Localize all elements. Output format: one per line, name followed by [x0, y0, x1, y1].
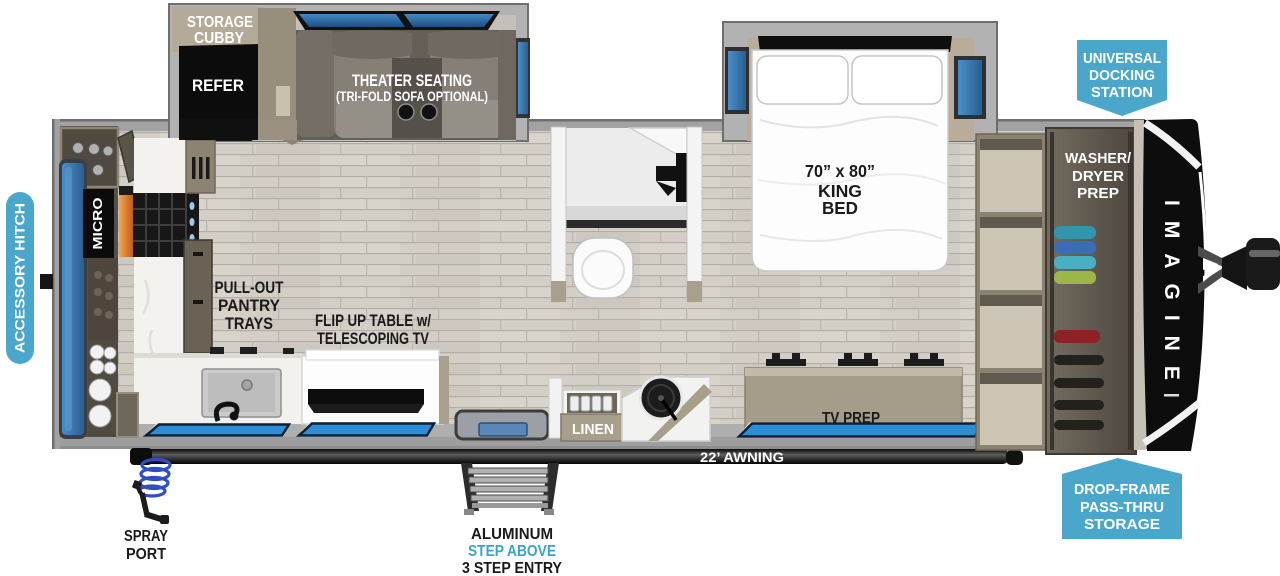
svg-text:ALUMINUM: ALUMINUM	[471, 526, 553, 543]
svg-text:3 STEP ENTRY: 3 STEP ENTRY	[462, 560, 562, 576]
svg-text:DOCKING: DOCKING	[1089, 67, 1155, 84]
svg-text:STORAGE: STORAGE	[1084, 516, 1160, 533]
svg-text:THEATER SEATING: THEATER SEATING	[352, 71, 472, 90]
svg-text:PORT: PORT	[126, 546, 166, 563]
svg-text:DRYER: DRYER	[1072, 169, 1125, 185]
svg-text:STATION: STATION	[1091, 84, 1153, 101]
svg-text:CUBBY: CUBBY	[194, 30, 245, 47]
svg-text:LINEN: LINEN	[572, 422, 614, 438]
svg-text:SPRAY: SPRAY	[124, 528, 169, 545]
svg-text:(TRI-FOLD SOFA OPTIONAL): (TRI-FOLD SOFA OPTIONAL)	[336, 89, 488, 104]
svg-text:PANTRY: PANTRY	[218, 297, 280, 315]
svg-text:TRAYS: TRAYS	[225, 315, 273, 333]
svg-text:WASHER/: WASHER/	[1065, 151, 1131, 167]
svg-text:REFER: REFER	[192, 77, 244, 95]
svg-text:TV PREP: TV PREP	[822, 410, 880, 427]
svg-text:IMAGINE: IMAGINE	[1160, 200, 1183, 395]
svg-text:PASS-THRU: PASS-THRU	[1080, 499, 1164, 516]
svg-text:DROP-FRAME: DROP-FRAME	[1074, 481, 1170, 498]
svg-text:UNIVERSAL: UNIVERSAL	[1083, 50, 1161, 67]
svg-text:TELESCOPING TV: TELESCOPING TV	[317, 329, 429, 348]
svg-text:STORAGE: STORAGE	[187, 14, 253, 31]
svg-text:70” x 80”: 70” x 80”	[805, 161, 875, 181]
svg-text:PREP: PREP	[1077, 186, 1119, 202]
svg-text:PULL-OUT: PULL-OUT	[215, 279, 284, 297]
svg-text:FLIP UP TABLE w/: FLIP UP TABLE w/	[315, 311, 431, 330]
svg-text:BED: BED	[822, 198, 858, 218]
svg-text:MICRO: MICRO	[90, 198, 105, 250]
svg-text:ACCESSORY HITCH: ACCESSORY HITCH	[13, 203, 28, 353]
svg-text:STEP ABOVE: STEP ABOVE	[468, 543, 556, 560]
svg-text:22’ AWNING: 22’ AWNING	[700, 449, 784, 465]
